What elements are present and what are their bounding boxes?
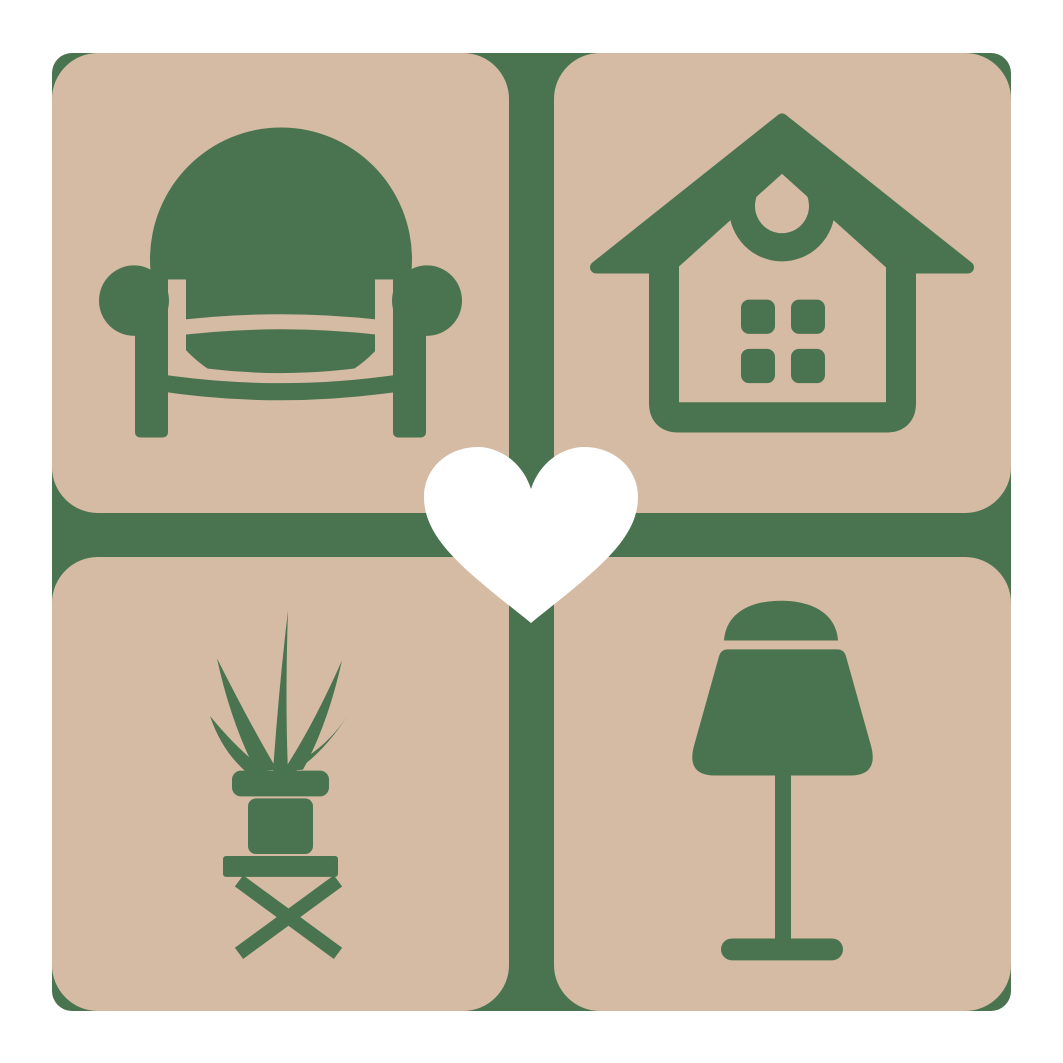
- pot-body: [248, 798, 313, 854]
- window: [741, 300, 775, 334]
- lamp-stem: [775, 770, 791, 945]
- stool-legs: [239, 881, 338, 954]
- heart-icon: [408, 432, 656, 640]
- window: [791, 349, 825, 383]
- pot-rim: [232, 771, 329, 797]
- lamp-cap: [724, 601, 838, 641]
- logo-canvas: [0, 0, 1063, 1063]
- window: [791, 300, 825, 334]
- lamp-shade: [692, 649, 872, 775]
- stool-top: [223, 856, 338, 877]
- window: [741, 349, 775, 383]
- lamp-base: [721, 938, 843, 960]
